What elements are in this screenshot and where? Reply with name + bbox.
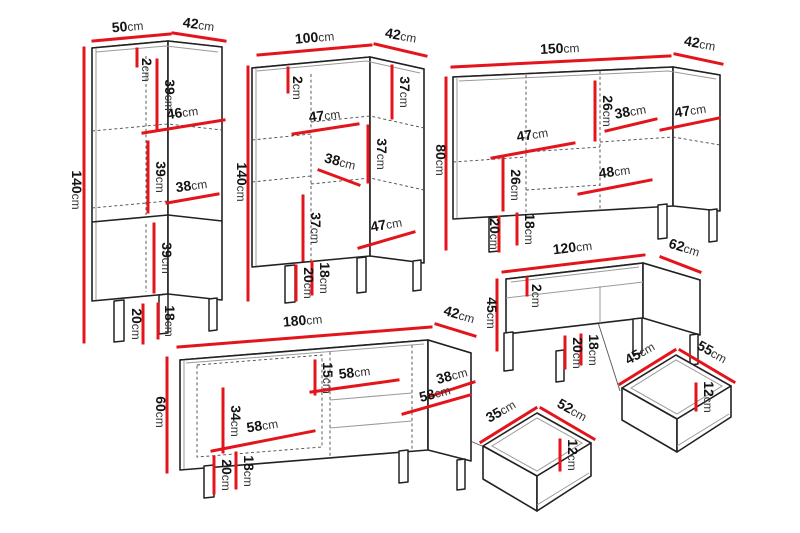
wide-cabinet-depth-label: 42cm xyxy=(384,24,418,45)
wide-cabinet: 100cm 42cm 140cm 2cm 47cm 37cm 38cm 37c xyxy=(234,24,426,303)
wide-cabinet-lower-left-section-label: 37cm xyxy=(308,212,324,244)
wide-cabinet-middle-right-section-label: 37cm xyxy=(374,138,390,170)
sideboard-width-label: 150cm xyxy=(540,39,580,57)
wide-cabinet-top-thickness-label: 2cm xyxy=(290,76,306,100)
tall-cabinet-depth-label: 42cm xyxy=(182,14,215,34)
coffee-table-depth-dimension: 62cm xyxy=(661,235,702,272)
sideboard-leg-height-label: 20cm xyxy=(487,218,503,250)
wide-cabinet-width-label: 100cm xyxy=(294,27,335,46)
tall-cabinet-width-dimension: 50cm xyxy=(93,17,170,41)
wide-cabinet-leg-height-label: 20cm xyxy=(301,267,317,299)
sideboard-body xyxy=(453,67,720,219)
tall-cabinet-depth-dimension: 42cm xyxy=(173,14,225,41)
small-drawer: 35cm 52cm 12cm xyxy=(481,395,594,511)
coffee-table-floor-clearance-label: 18cm xyxy=(586,334,602,366)
coffee-table-width-label: 120cm xyxy=(552,237,593,258)
coffee-table-leg-height-dimension: 20cm xyxy=(565,337,586,369)
large-drawer-height-label: 12cm xyxy=(701,381,717,413)
large-drawer: 45cm 55cm 12cm xyxy=(620,337,734,452)
tall-cabinet-top-thickness-label: 2cm xyxy=(139,58,155,82)
wide-cabinet-leg-height-dimension: 20cm xyxy=(296,266,317,300)
tall-cabinet-leg-height-label: 20cm xyxy=(129,308,145,340)
tall-cabinet-width-label: 50cm xyxy=(111,17,144,36)
tall-cabinet-floor-clearance-label: 18cm xyxy=(162,305,178,337)
tall-cabinet-middle-section-label: 39cm xyxy=(153,161,169,193)
small-drawer-height-label: 12cm xyxy=(565,439,581,471)
tv-stand-height-label: 60cm xyxy=(153,396,169,428)
sideboard-floor-clearance-dimension: 18cm xyxy=(517,213,538,245)
sideboard-height-label: 80cm xyxy=(433,144,449,176)
tall-cabinet-leg-height-dimension: 20cm xyxy=(129,305,145,343)
diagram-canvas: 50cm 42cm 140cm 2cm 39cm 46cm 39cm 38cm xyxy=(0,0,800,533)
coffee-table-height-dimension: 45cm xyxy=(484,280,500,350)
tall-cabinet: 50cm 42cm 140cm 2cm 39cm 46cm 39cm 38cm xyxy=(69,14,225,343)
tall-cabinet-lower-section-label: 39cm xyxy=(159,242,175,274)
tv-stand: 180cm 42cm 60cm 15cm 58cm 38cm 58cm 34c xyxy=(153,302,477,498)
tv-stand-height-dimension: 60cm xyxy=(153,358,169,472)
coffee-table-leg-height-label: 20cm xyxy=(570,337,586,369)
wide-cabinet-height-label: 140cm xyxy=(234,162,250,201)
coffee-table-top-thickness-label: 2cm xyxy=(529,284,545,308)
tv-stand-depth-label: 42cm xyxy=(442,302,477,326)
wide-cabinet-floor-clearance-label: 18cm xyxy=(317,262,333,294)
tv-stand-leg-height-label: 20cm xyxy=(219,459,235,491)
sideboard-height-dimension: 80cm xyxy=(433,78,449,249)
tall-cabinet-height-label: 140cm xyxy=(69,170,85,209)
sideboard-left-middle-section-label: 26cm xyxy=(508,169,524,201)
tv-stand-width-label: 180cm xyxy=(282,310,323,329)
wide-cabinet-height-dimension: 140cm xyxy=(234,67,250,300)
coffee-table-height-label: 45cm xyxy=(484,297,500,329)
sideboard-depth-dimension: 42cm xyxy=(675,32,722,64)
tall-cabinet-height-dimension: 140cm xyxy=(69,48,85,342)
furniture-dimension-diagram: 50cm 42cm 140cm 2cm 39cm 46cm 39cm 38cm xyxy=(0,0,800,533)
wide-cabinet-depth-dimension: 42cm xyxy=(375,24,426,56)
sideboard: 150cm 42cm 80cm 26cm 38cm 47cm 47cm 26c xyxy=(433,32,722,252)
sideboard-width-dimension: 150cm xyxy=(452,39,670,67)
sideboard-floor-clearance-label: 18cm xyxy=(522,213,538,245)
sideboard-leg-height-dimension: 20cm xyxy=(487,217,503,251)
tv-stand-floor-clearance-label: 18cm xyxy=(241,455,257,487)
tv-stand-depth-dimension: 42cm xyxy=(436,302,477,336)
sideboard-depth-label: 42cm xyxy=(683,32,717,53)
tv-stand-left-door-section-label: 34cm xyxy=(228,405,244,437)
coffee-table-depth-label: 62cm xyxy=(667,235,702,260)
wide-cabinet-width-dimension: 100cm xyxy=(258,27,371,55)
wide-cabinet-upper-right-section-label: 37cm xyxy=(397,76,413,108)
